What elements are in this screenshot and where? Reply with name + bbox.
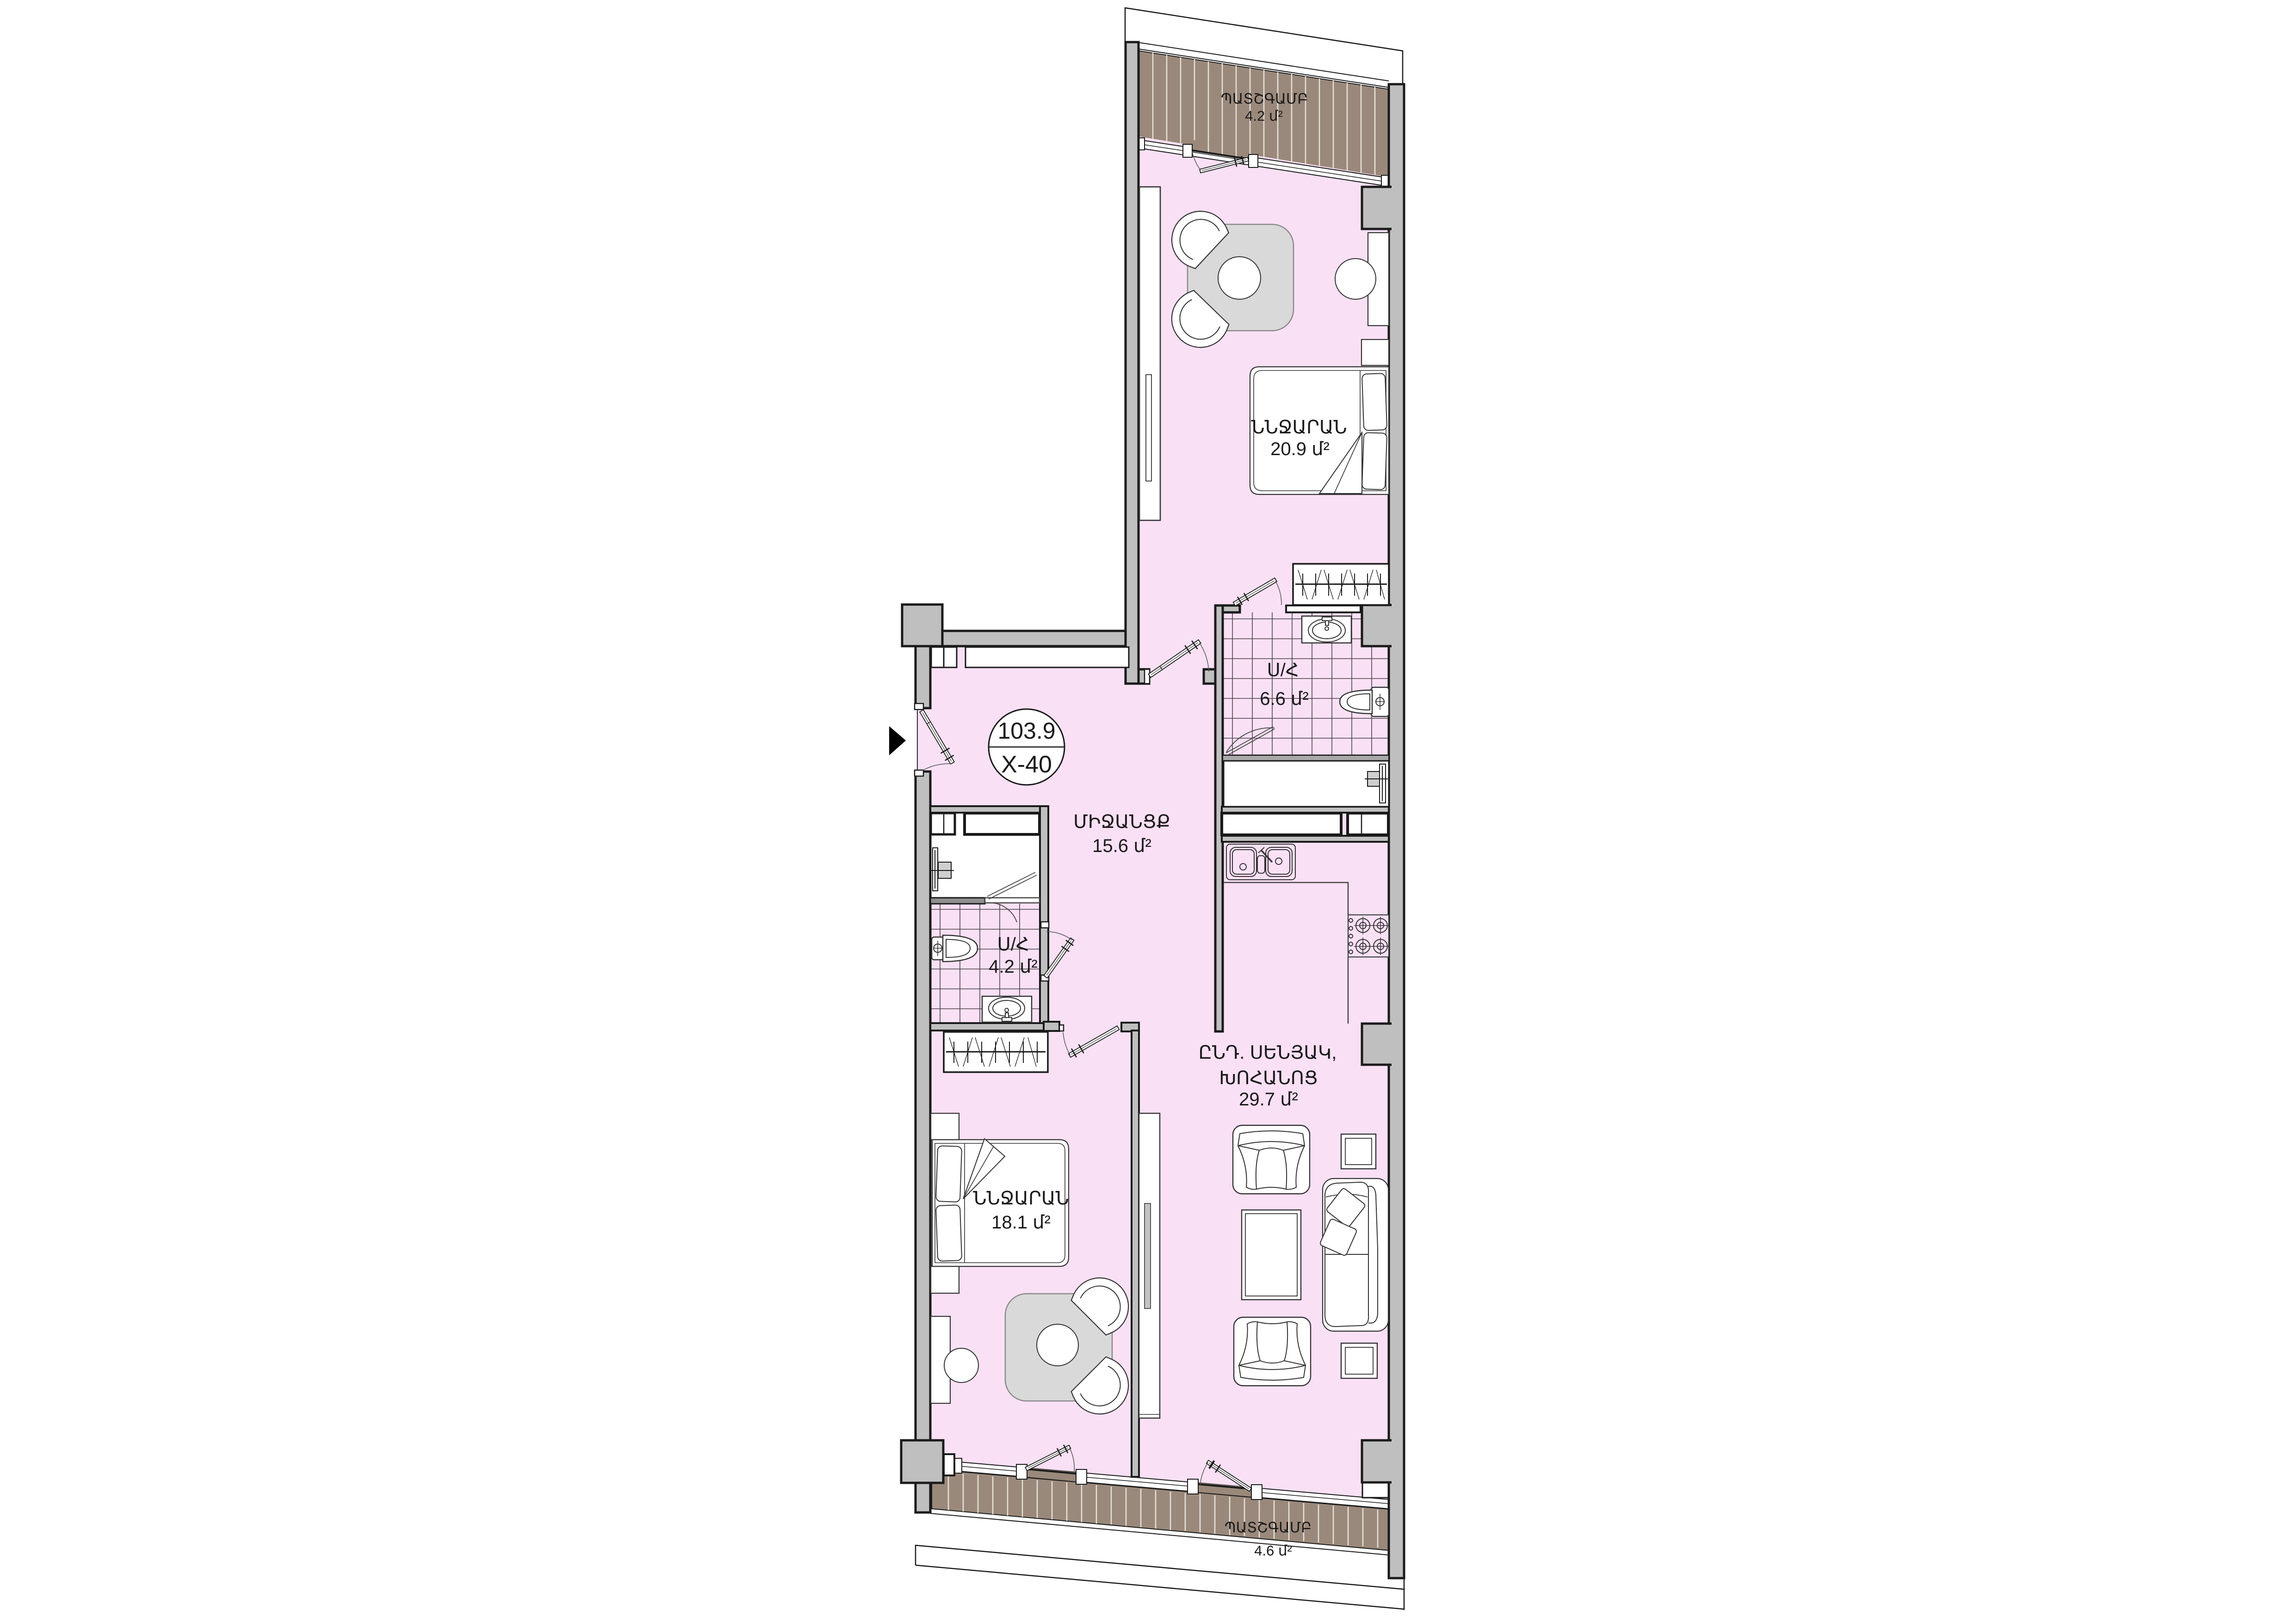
svg-text:ՆՆՋԱՐԱՆ: ՆՆՋԱՐԱՆ	[973, 1188, 1069, 1209]
svg-text:6.6 մ²: 6.6 մ²	[1260, 689, 1308, 709]
svg-text:ՄԻՋԱՆՑՔ: ՄԻՋԱՆՑՔ	[1073, 812, 1170, 832]
svg-text:20.9 մ²: 20.9 մ²	[1270, 439, 1330, 459]
svg-text:ՊԱՏՇԳԱՄԲ: ՊԱՏՇԳԱՄԲ	[1221, 91, 1308, 107]
svg-text:ԸՆԴ. ՍԵՆՅԱԿ,: ԸՆԴ. ՍԵՆՅԱԿ,	[1199, 1043, 1337, 1063]
svg-text:4.2 մ²: 4.2 մ²	[989, 957, 1037, 977]
svg-text:Ս/Հ: Ս/Հ	[997, 934, 1029, 955]
svg-text:X-40: X-40	[1001, 751, 1052, 778]
svg-text:4.6 մ²: 4.6 մ²	[1254, 1543, 1292, 1559]
svg-text:ԽՈՀԱՆՈՑ: ԽՈՀԱՆՈՑ	[1219, 1068, 1318, 1088]
svg-text:ՆՆՋԱՐԱՆ: ՆՆՋԱՐԱՆ	[1251, 417, 1347, 438]
svg-text:29.7 մ²: 29.7 մ²	[1239, 1089, 1298, 1110]
svg-text:Ս/Հ: Ս/Հ	[1267, 660, 1299, 680]
svg-text:4.2 մ²: 4.2 մ²	[1245, 108, 1283, 124]
svg-text:ՊԱՏՇԳԱՄԲ: ՊԱՏՇԳԱՄԲ	[1225, 1519, 1312, 1536]
svg-text:18.1 մ²: 18.1 մ²	[991, 1212, 1051, 1233]
svg-text:15.6 մ²: 15.6 մ²	[1092, 836, 1151, 856]
svg-text:103.9: 103.9	[997, 718, 1055, 744]
